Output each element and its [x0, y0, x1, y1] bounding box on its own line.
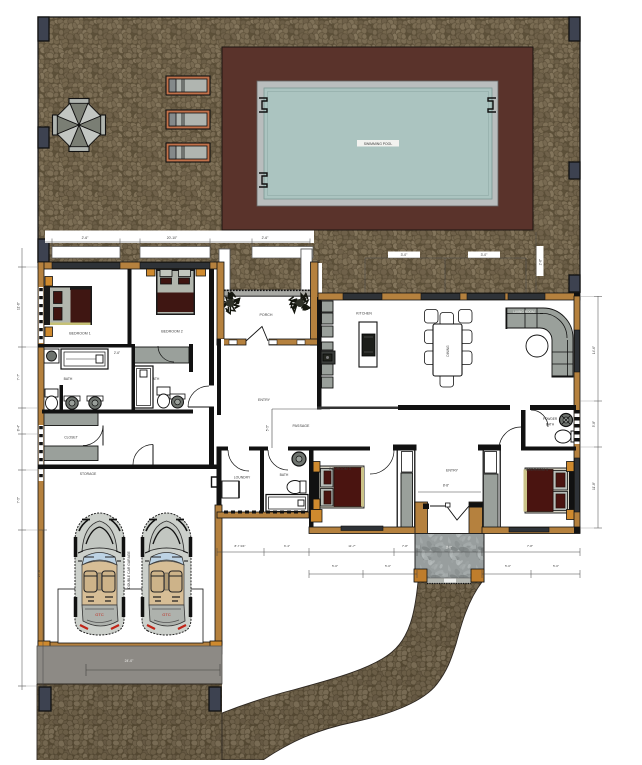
svg-text:3'-0": 3'-0": [481, 253, 489, 257]
svg-text:3'-6": 3'-6": [446, 546, 452, 550]
svg-text:11'-6": 11'-6": [17, 302, 21, 310]
svg-text:7'-7": 7'-7": [17, 374, 21, 380]
svg-text:8'-7 3/4": 8'-7 3/4": [235, 544, 246, 548]
svg-text:2'-6": 2'-6": [82, 236, 90, 240]
svg-text:7'-5": 7'-5": [17, 497, 21, 503]
svg-text:BATH: BATH: [280, 473, 289, 477]
svg-text:5'-0": 5'-0": [553, 564, 559, 568]
svg-text:BEDROOM 4: BEDROOM 4: [526, 468, 548, 472]
svg-text:2'-6": 2'-6": [262, 236, 270, 240]
svg-text:DINING: DINING: [446, 345, 450, 357]
svg-text:14'-6": 14'-6": [592, 346, 596, 354]
svg-text:KITCHEN: KITCHEN: [356, 312, 372, 316]
svg-text:5'-0": 5'-0": [505, 564, 511, 568]
svg-text:8'-8": 8'-8": [443, 484, 449, 488]
svg-text:5'-0": 5'-0": [385, 564, 391, 568]
svg-text:3'-0": 3'-0": [401, 253, 409, 257]
svg-text:GTC: GTC: [162, 612, 171, 617]
svg-text:2'-6": 2'-6": [114, 351, 120, 355]
svg-text:PASSAGE: PASSAGE: [293, 424, 311, 428]
svg-text:SWIMMING POOL: SWIMMING POOL: [364, 142, 393, 146]
svg-text:CLOSET: CLOSET: [64, 436, 78, 440]
svg-text:7'-8": 7'-8": [402, 544, 408, 548]
svg-text:5'-8": 5'-8": [592, 421, 596, 427]
svg-text:DOUBLE CAR GARAGE: DOUBLE CAR GARAGE: [127, 551, 131, 589]
svg-text:LIVING ROOM: LIVING ROOM: [513, 310, 535, 314]
svg-text:ENTRY: ENTRY: [258, 398, 271, 402]
svg-text:8'-4": 8'-4": [17, 425, 21, 431]
svg-text:11'-7": 11'-7": [348, 544, 355, 548]
svg-text:6'-4": 6'-4": [284, 544, 290, 548]
svg-text:11'-8": 11'-8": [592, 482, 596, 490]
svg-text:BEDROOM 2: BEDROOM 2: [161, 330, 183, 334]
svg-text:2'-6": 2'-6": [539, 259, 543, 265]
svg-text:STORAGE: STORAGE: [80, 472, 97, 476]
svg-text:ENTRY: ENTRY: [446, 469, 459, 473]
svg-text:BEDROOM 3: BEDROOM 3: [329, 467, 351, 471]
svg-text:7'-8": 7'-8": [527, 544, 533, 548]
svg-text:5'-5": 5'-5": [266, 425, 270, 431]
svg-text:BATH: BATH: [64, 377, 73, 381]
svg-text:BEDROOM 1: BEDROOM 1: [69, 332, 91, 336]
svg-text:LOUNDRY: LOUNDRY: [234, 476, 251, 480]
svg-text:24'-0": 24'-0": [125, 659, 134, 663]
svg-text:PORCH: PORCH: [260, 313, 273, 317]
svg-text:27'-6": 27'-6": [37, 569, 41, 577]
svg-text:GTC: GTC: [95, 612, 104, 617]
svg-text:5'-0": 5'-0": [332, 564, 338, 568]
svg-text:BATH: BATH: [546, 423, 555, 427]
svg-text:20'-10": 20'-10": [167, 236, 178, 240]
